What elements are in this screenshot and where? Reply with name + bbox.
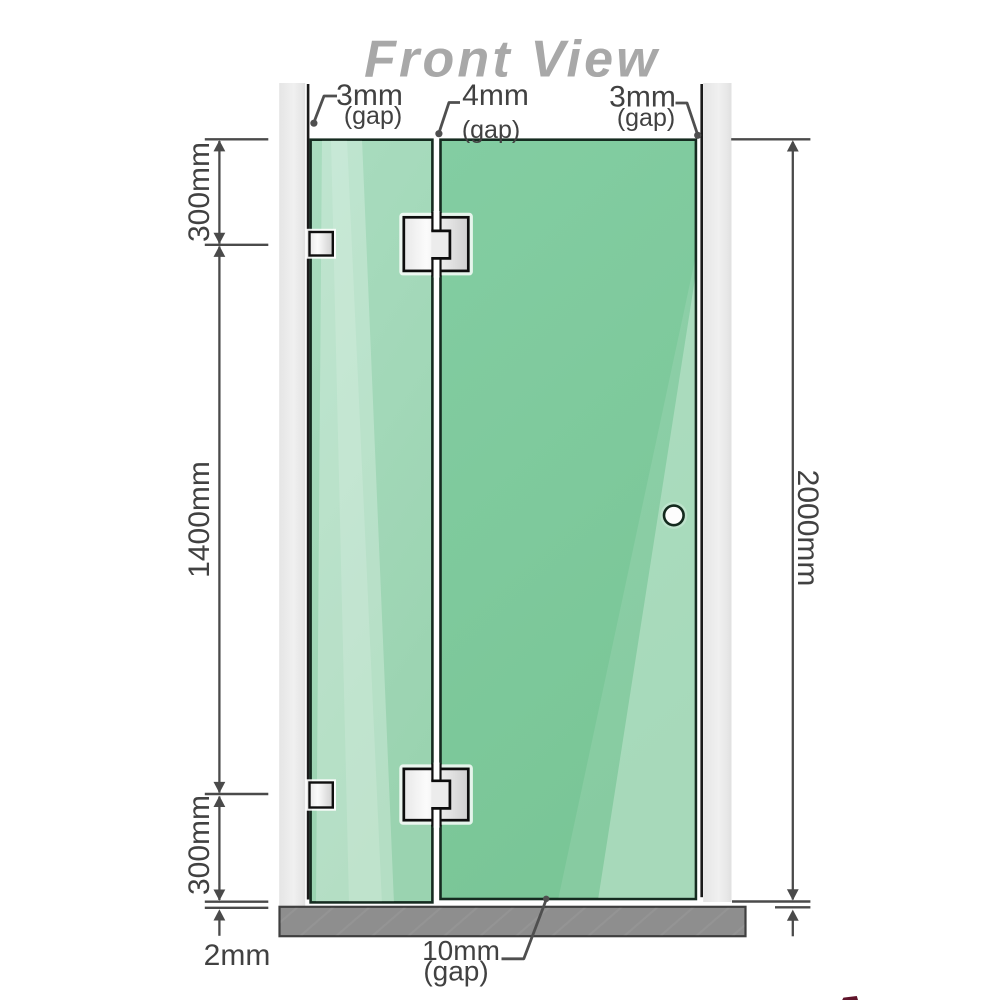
svg-text:300mm: 300mm [183,795,216,895]
svg-text:2mm: 2mm [204,939,271,972]
svg-text:(gap): (gap) [423,956,488,987]
svg-text:(gap): (gap) [462,116,520,144]
svg-text:300mm: 300mm [183,142,216,242]
svg-text:4mm: 4mm [462,79,529,112]
svg-text:(gap): (gap) [617,104,675,132]
svg-text:2000mm: 2000mm [791,470,824,587]
svg-text:1400mm: 1400mm [183,461,216,578]
svg-text:(gap): (gap) [344,102,402,130]
